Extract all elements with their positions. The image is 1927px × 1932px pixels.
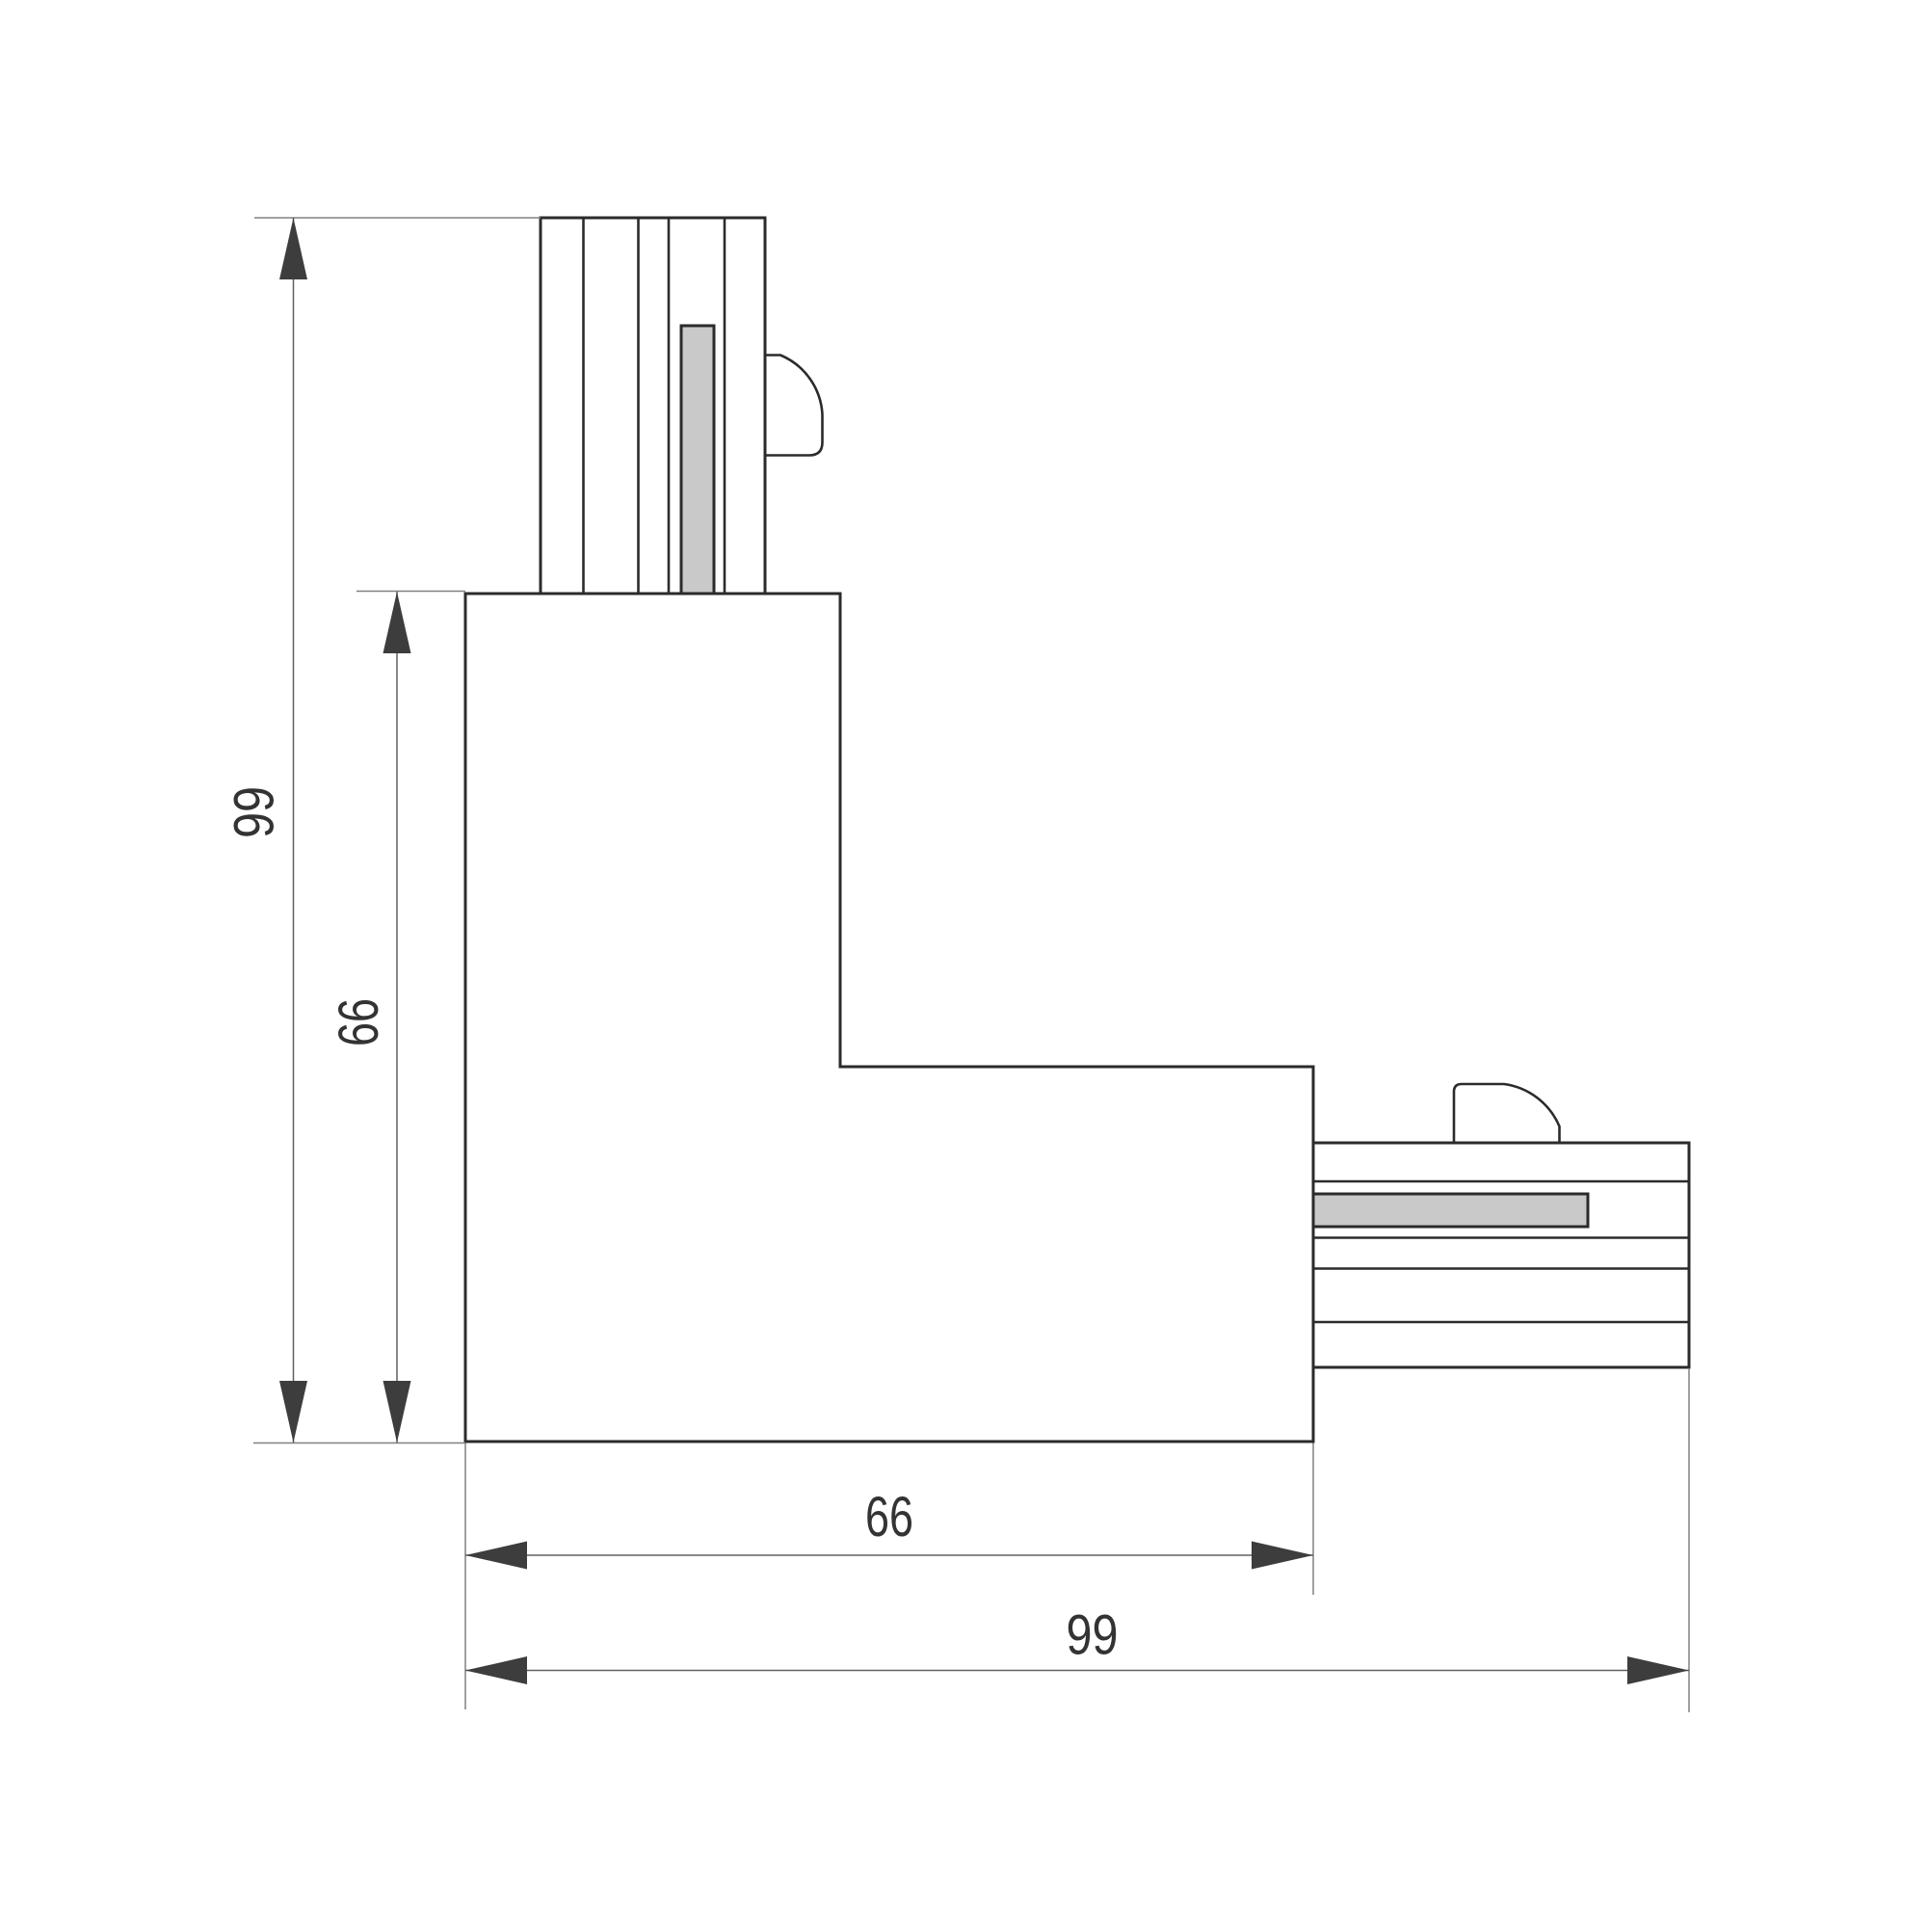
svg-text:66: 66 [328, 998, 390, 1046]
svg-text:66: 66 [865, 1486, 913, 1548]
svg-text:99: 99 [224, 786, 286, 838]
svg-text:99: 99 [1067, 1604, 1119, 1667]
